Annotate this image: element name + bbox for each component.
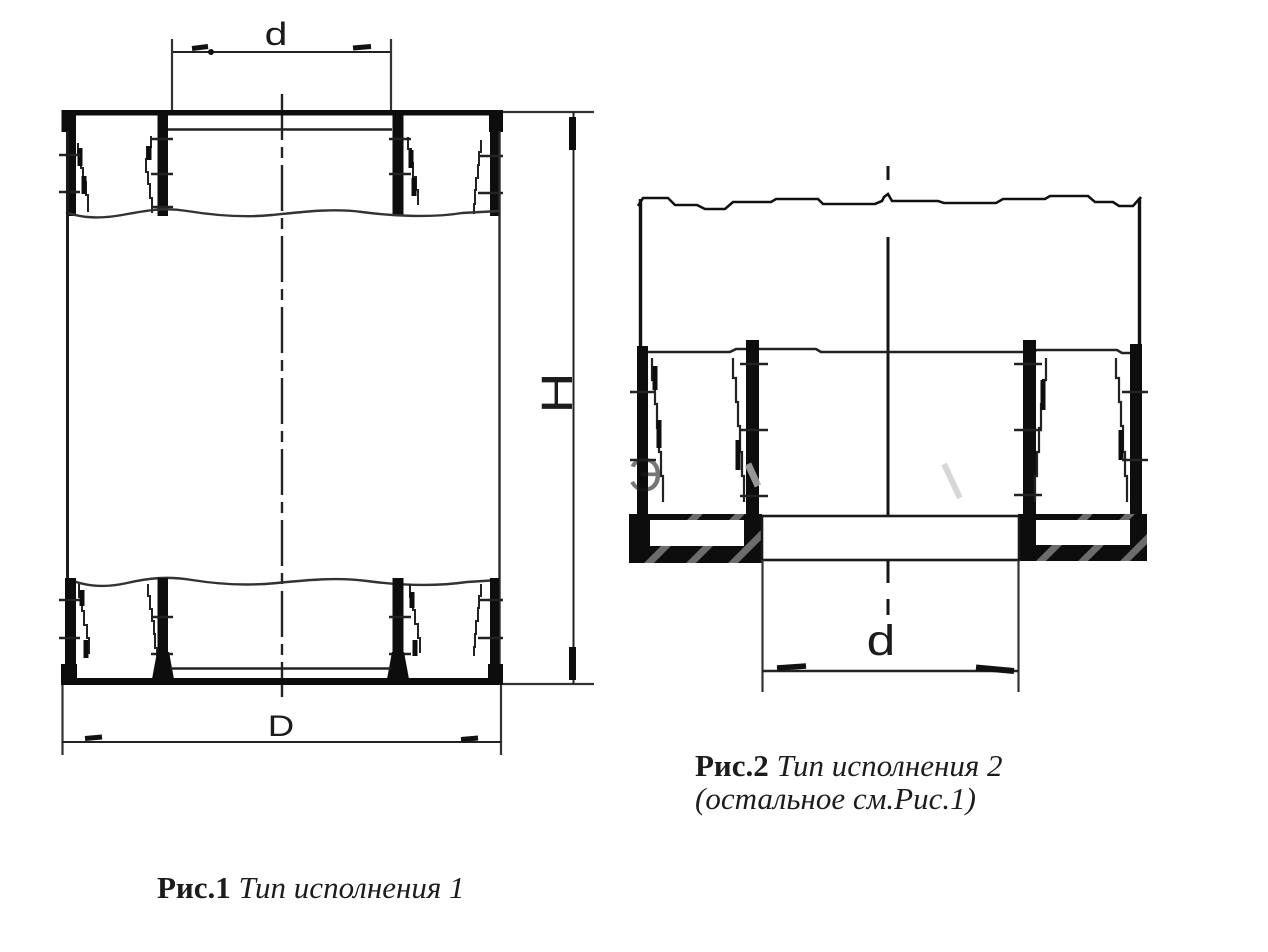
svg-text:(остальное см.Рис.1): (остальное см.Рис.1): [695, 781, 976, 816]
svg-text:D: D: [268, 710, 294, 743]
svg-text:Э: Э: [628, 448, 662, 501]
svg-text:Рис.2 Тип исполнения 2: Рис.2 Тип исполнения 2: [695, 748, 1003, 783]
svg-text:Рис.1 Тип исполнения 1: Рис.1 Тип исполнения 1: [157, 870, 465, 905]
svg-text:d: d: [867, 617, 896, 665]
svg-text:H: H: [532, 372, 581, 413]
svg-text:d: d: [265, 16, 288, 52]
